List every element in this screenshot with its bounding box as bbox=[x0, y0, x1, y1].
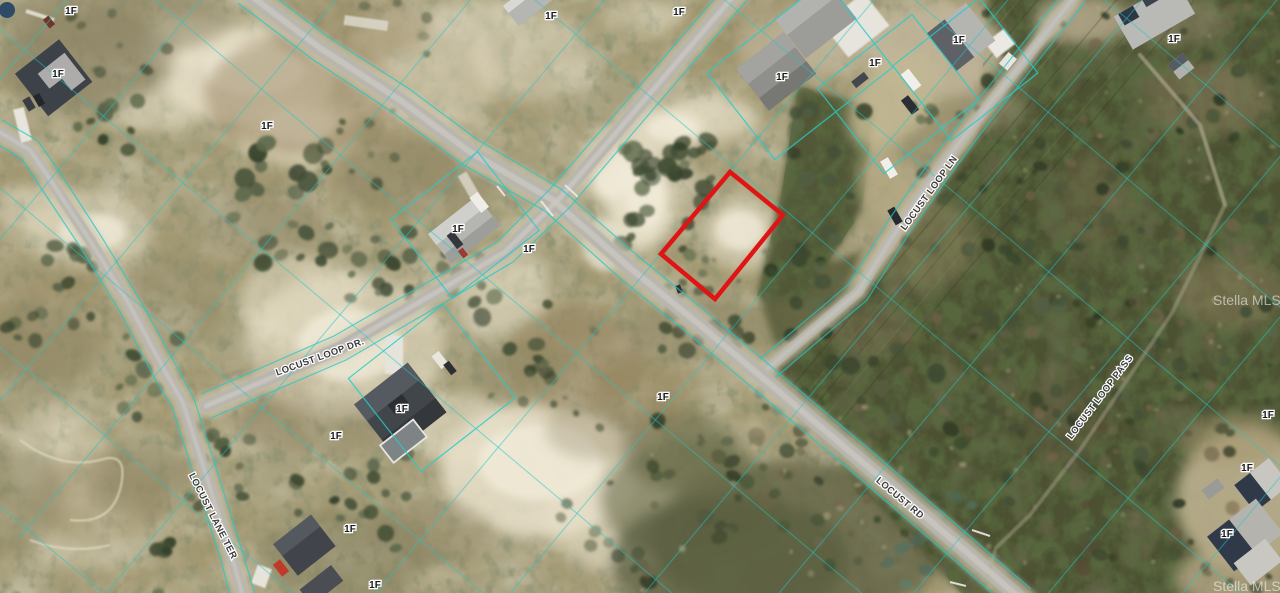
svg-text:1F: 1F bbox=[344, 524, 356, 535]
svg-text:1F: 1F bbox=[657, 392, 669, 403]
svg-text:1F: 1F bbox=[545, 11, 557, 22]
svg-text:1F: 1F bbox=[1168, 34, 1180, 45]
svg-text:1F: 1F bbox=[776, 72, 788, 83]
svg-text:1F: 1F bbox=[1241, 463, 1253, 474]
svg-text:1F: 1F bbox=[369, 580, 381, 591]
svg-text:1F: 1F bbox=[869, 58, 881, 69]
svg-text:1F: 1F bbox=[1262, 410, 1274, 421]
svg-text:1F: 1F bbox=[396, 404, 408, 415]
svg-text:1F: 1F bbox=[52, 69, 64, 80]
svg-text:Stella MLS: Stella MLS bbox=[1213, 578, 1280, 593]
svg-text:1F: 1F bbox=[452, 224, 464, 235]
svg-text:1F: 1F bbox=[953, 35, 965, 46]
svg-text:1F: 1F bbox=[65, 6, 77, 17]
svg-text:1F: 1F bbox=[523, 244, 535, 255]
svg-text:1F: 1F bbox=[1221, 529, 1233, 540]
svg-text:1F: 1F bbox=[261, 121, 273, 132]
svg-text:1F: 1F bbox=[673, 7, 685, 18]
svg-text:1F: 1F bbox=[330, 431, 342, 442]
svg-text:Stella MLS: Stella MLS bbox=[1213, 292, 1280, 308]
